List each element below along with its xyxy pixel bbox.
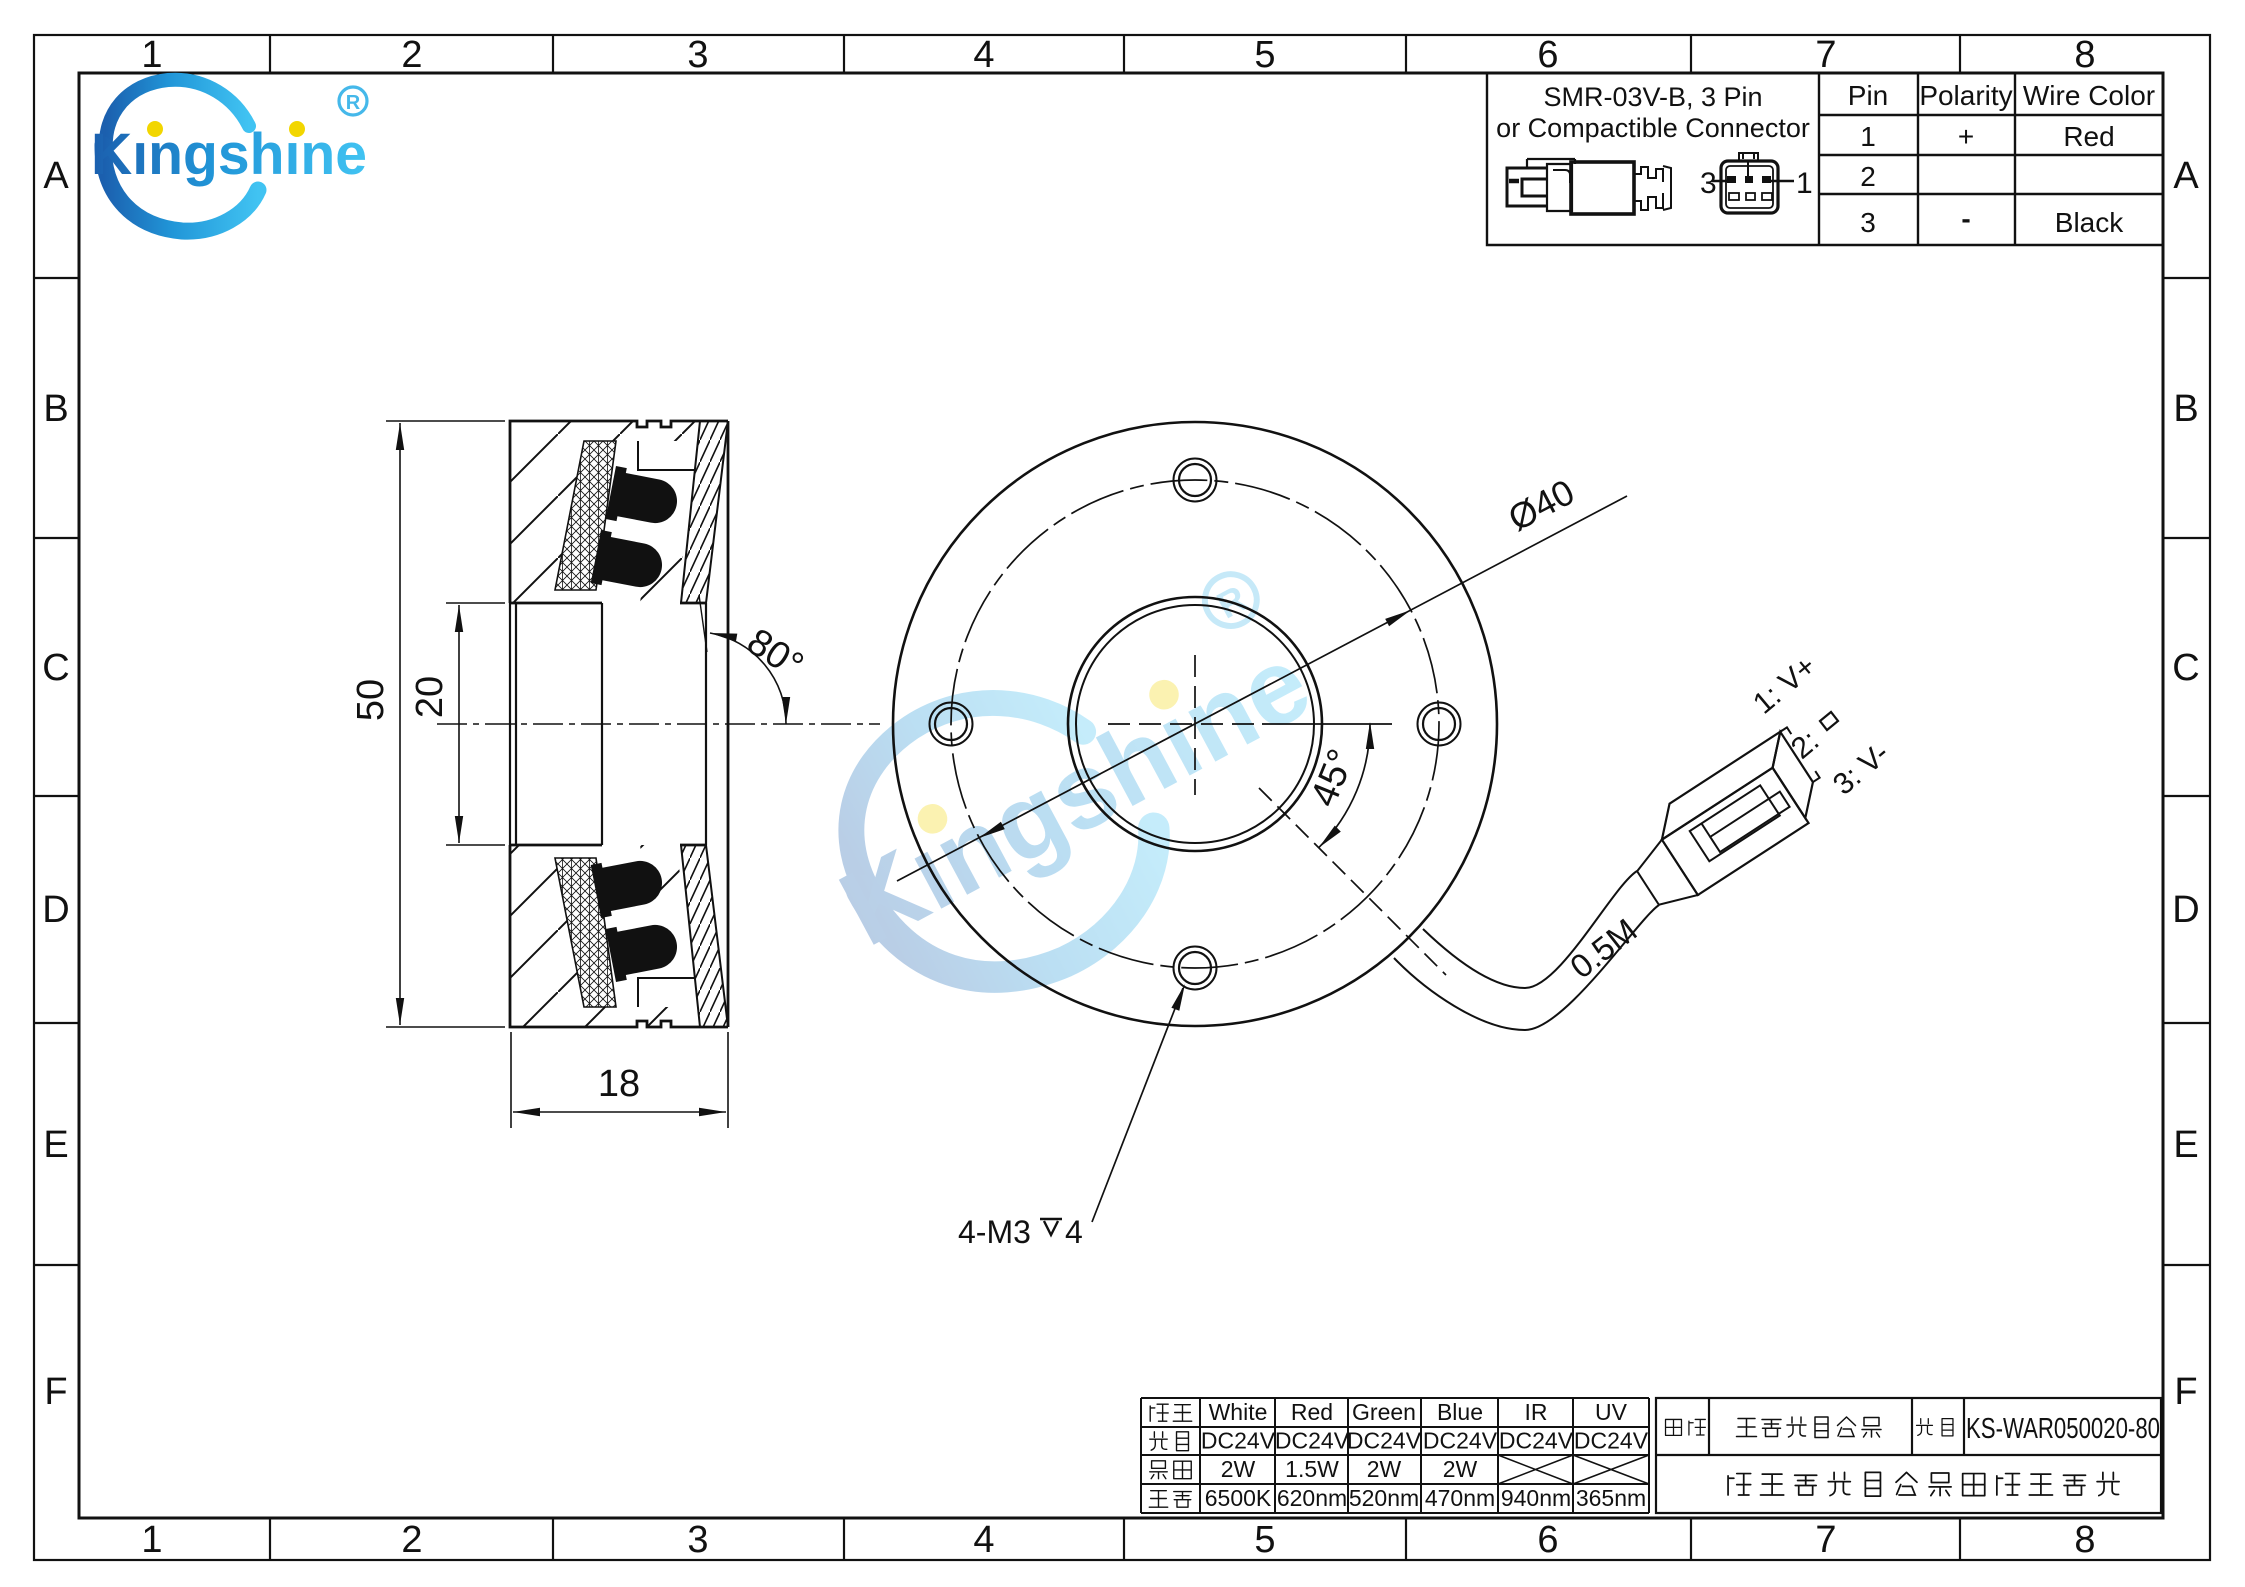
svg-text:50: 50 xyxy=(350,679,392,721)
svg-text:4: 4 xyxy=(973,34,994,76)
svg-text:470nm: 470nm xyxy=(1425,1485,1495,1511)
svg-text:KS-WAR050020-80: KS-WAR050020-80 xyxy=(1966,1413,2160,1445)
svg-text:7: 7 xyxy=(1815,1519,1836,1561)
svg-text:Red: Red xyxy=(1291,1399,1333,1425)
svg-text:2: 2 xyxy=(1860,161,1876,192)
svg-text:B: B xyxy=(43,388,68,430)
svg-text:3: 3 xyxy=(1700,167,1717,200)
svg-text:DC24V: DC24V xyxy=(1423,1428,1498,1454)
svg-text:2W: 2W xyxy=(1443,1456,1478,1482)
svg-text:Wire Color: Wire Color xyxy=(2023,80,2155,111)
svg-text:6: 6 xyxy=(1537,1519,1558,1561)
svg-text:Polarity: Polarity xyxy=(1919,80,2012,111)
svg-text:3: 3 xyxy=(687,1519,708,1561)
svg-text:5: 5 xyxy=(1254,34,1275,76)
svg-text:A: A xyxy=(43,155,69,197)
svg-text:DC24V: DC24V xyxy=(1499,1428,1574,1454)
svg-text:D: D xyxy=(2172,889,2199,931)
svg-text:5: 5 xyxy=(1254,1519,1275,1561)
svg-text:+: + xyxy=(1958,121,1974,152)
svg-text:4-M3: 4-M3 xyxy=(958,1214,1031,1250)
svg-text:2W: 2W xyxy=(1367,1456,1402,1482)
svg-text:520nm: 520nm xyxy=(1349,1485,1419,1511)
svg-text:Pin: Pin xyxy=(1848,80,1888,111)
svg-text:3: 3 xyxy=(687,34,708,76)
svg-text:620nm: 620nm xyxy=(1277,1485,1347,1511)
svg-text:E: E xyxy=(43,1124,68,1166)
svg-text:1: 1 xyxy=(1860,121,1876,152)
svg-text:DC24V: DC24V xyxy=(1574,1428,1649,1454)
svg-text:1: 1 xyxy=(1796,167,1813,200)
svg-text:IR: IR xyxy=(1525,1399,1548,1425)
svg-text:or Compactible Connector: or Compactible Connector xyxy=(1496,113,1810,143)
svg-text:A: A xyxy=(2173,155,2199,197)
svg-text:Green: Green xyxy=(1352,1399,1416,1425)
svg-text:7: 7 xyxy=(1815,34,1836,76)
svg-text:SMR-03V-B, 3 Pin: SMR-03V-B, 3 Pin xyxy=(1543,82,1762,112)
svg-text:8: 8 xyxy=(2074,1519,2095,1561)
svg-text:6: 6 xyxy=(1537,34,1558,76)
svg-text:UV: UV xyxy=(1595,1399,1628,1425)
svg-text:DC24V: DC24V xyxy=(1347,1428,1422,1454)
svg-text:8: 8 xyxy=(2074,34,2095,76)
svg-text:Red: Red xyxy=(2063,121,2114,152)
svg-text:C: C xyxy=(42,647,69,689)
svg-text:1: 1 xyxy=(141,1519,162,1561)
svg-text:20: 20 xyxy=(409,676,451,718)
svg-text:2W: 2W xyxy=(1221,1456,1256,1482)
svg-text:2: 2 xyxy=(401,34,422,76)
svg-text:-: - xyxy=(1961,203,1970,234)
svg-text:Blue: Blue xyxy=(1437,1399,1483,1425)
svg-text:Black: Black xyxy=(2055,207,2124,238)
svg-text:E: E xyxy=(2173,1124,2198,1166)
svg-text:F: F xyxy=(2174,1371,2197,1413)
svg-text:1.5W: 1.5W xyxy=(1285,1456,1339,1482)
svg-text:B: B xyxy=(2173,388,2198,430)
svg-text:4: 4 xyxy=(1065,1214,1083,1250)
svg-text:940nm: 940nm xyxy=(1501,1485,1571,1511)
svg-text:D: D xyxy=(42,889,69,931)
svg-text:6500K: 6500K xyxy=(1205,1485,1272,1511)
svg-text:4: 4 xyxy=(973,1519,994,1561)
svg-text:DC24V: DC24V xyxy=(1201,1428,1276,1454)
svg-text:White: White xyxy=(1209,1399,1268,1425)
svg-text:2: 2 xyxy=(401,1519,422,1561)
svg-text:F: F xyxy=(44,1371,67,1413)
svg-text:1: 1 xyxy=(141,34,162,76)
svg-text:18: 18 xyxy=(598,1063,640,1105)
svg-text:3: 3 xyxy=(1860,207,1876,238)
svg-text:365nm: 365nm xyxy=(1576,1485,1646,1511)
svg-text:DC24V: DC24V xyxy=(1275,1428,1350,1454)
svg-text:C: C xyxy=(2172,647,2199,689)
